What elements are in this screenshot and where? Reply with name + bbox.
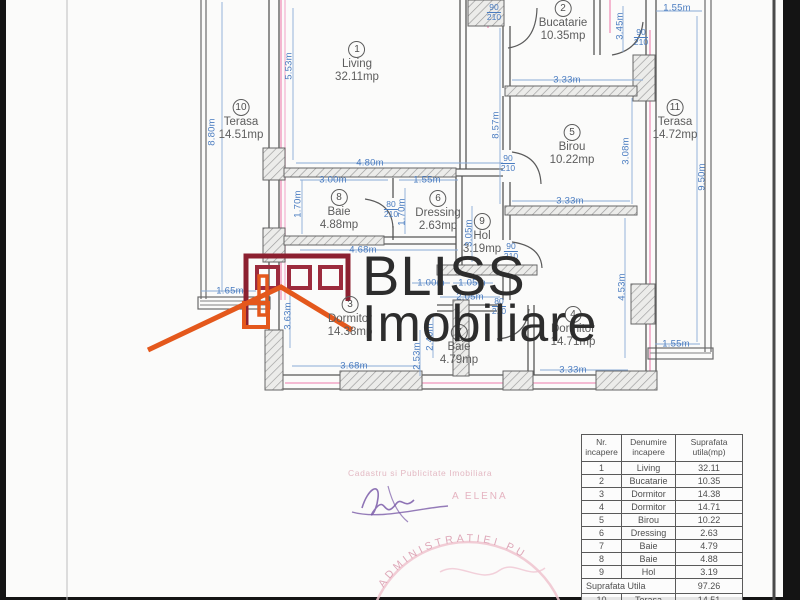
table-total-row: Suprafata Utila 97.26: [582, 579, 743, 594]
door-size-label: 90210: [634, 28, 648, 46]
table-cell: 10: [582, 594, 622, 600]
room-label: 10Terasa14.51mp: [219, 97, 264, 142]
table-cell: Living: [622, 462, 676, 475]
door-size-label: 80210: [384, 200, 398, 218]
room-area: 14.72mp: [653, 129, 698, 142]
table-cell: 14.71: [676, 501, 743, 514]
room-name: Dressing: [415, 207, 460, 220]
dimension-label: 8.80m: [207, 118, 218, 145]
seal-arc-text: ADMINISTRATIEI PU: [376, 532, 529, 589]
scanned-floorplan-page: ADMINISTRATIEI PU 1Living32.11mp2Bucatar…: [0, 0, 800, 600]
area-table-body: 1Living32.112Bucatarie10.353Dormitor14.3…: [582, 462, 743, 579]
table-cell: 10.22: [676, 514, 743, 527]
room-label: 6Dressing2.63mp: [415, 188, 460, 233]
table-cell: 10.35: [676, 475, 743, 488]
dimension-label: 3.33m: [556, 196, 583, 207]
table-row: 5Birou10.22: [582, 514, 743, 527]
room-number-circle: 3: [341, 296, 358, 313]
room-area: 32.11mp: [335, 71, 379, 84]
room-name: Baie: [320, 206, 358, 219]
dimension-label: 5.53m: [284, 52, 295, 79]
stamp-name-text: A ELENA: [452, 491, 508, 502]
table-cell: Birou: [622, 514, 676, 527]
table-cell: 4.88: [676, 553, 743, 566]
watermark-line2: Imobiliare: [362, 301, 597, 349]
room-label: 8Baie4.88mp: [320, 187, 358, 232]
area-table-partial: 10Terasa14.51: [582, 594, 743, 600]
table-header-nr: Nr.incapere: [582, 435, 622, 462]
table-cell: Dormitor: [622, 488, 676, 501]
room-number-circle: 1: [349, 41, 366, 58]
dimension-label: 8.57m: [491, 111, 502, 138]
room-label: 5Birou10.22mp: [550, 122, 595, 167]
table-row: 8Baie4.88: [582, 553, 743, 566]
table-header-suprafata: Suprafatautila(mp): [676, 435, 743, 462]
table-cell: 4: [582, 501, 622, 514]
svg-text:ADMINISTRATIEI PU: ADMINISTRATIEI PU: [376, 532, 529, 589]
dimension-label: 3.05m: [464, 219, 475, 246]
dimension-label: 1.70m: [293, 190, 304, 217]
room-name: Bucatarie: [539, 17, 588, 30]
area-table: Nr.incapere Denumireincapere Suprafataut…: [581, 434, 743, 600]
table-cell: Dressing: [622, 527, 676, 540]
dimension-label: 1.55m: [663, 3, 690, 14]
table-cell: Baie: [622, 553, 676, 566]
table-cell: 4.79: [676, 540, 743, 553]
dimension-label: 4.80m: [356, 158, 383, 169]
room-name: Terasa: [653, 116, 698, 129]
room-area: 10.22mp: [550, 154, 595, 167]
table-cell: 5: [582, 514, 622, 527]
room-number-circle: 8: [330, 189, 347, 206]
dimension-label: 3.33m: [559, 365, 586, 376]
dimension-label: 3.68m: [340, 361, 367, 372]
room-name: Living: [335, 58, 379, 71]
table-cell: 7: [582, 540, 622, 553]
table-row: 9Hol3.19: [582, 566, 743, 579]
bliss-logo-graphic: [148, 256, 352, 350]
room-number-circle: 10: [232, 99, 249, 116]
table-cell: Baie: [622, 540, 676, 553]
dimension-label: 3.00m: [319, 175, 346, 186]
room-area: 4.88mp: [320, 219, 358, 232]
dimension-label: 1.55m: [662, 339, 689, 350]
room-name: Terasa: [219, 116, 264, 129]
table-cell: 14.51: [676, 594, 743, 600]
stamp-office-text: Cadastru si Publicitate Imobiliara: [348, 468, 492, 478]
table-cell: 32.11: [676, 462, 743, 475]
table-cell: Terasa: [622, 594, 676, 600]
room-area: 4.79mp: [440, 354, 478, 367]
table-cell: Hol: [622, 566, 676, 579]
room-label: 2Bucatarie10.35mp: [539, 0, 588, 43]
table-cell: 1: [582, 462, 622, 475]
room-area: 14.51mp: [219, 129, 264, 142]
dimension-label: 4.53m: [617, 273, 628, 300]
dimension-label: 1.55m: [413, 175, 440, 186]
table-cell: Bucatarie: [622, 475, 676, 488]
handwritten-signature: [362, 489, 414, 515]
dimension-label: 3.63m: [283, 302, 294, 329]
dimension-label: 3.08m: [621, 137, 632, 164]
door-size-label: 90210: [501, 154, 515, 172]
table-row: 2Bucatarie10.35: [582, 475, 743, 488]
table-row: 4Dormitor14.71: [582, 501, 743, 514]
room-number-circle: 9: [473, 213, 490, 230]
watermark-line1: BLISS: [362, 250, 526, 302]
room-label: 1Living32.11mp: [335, 39, 379, 84]
table-row: 1Living32.11: [582, 462, 743, 475]
table-cell: 6: [582, 527, 622, 540]
table-cell: 3.19: [676, 566, 743, 579]
table-row: 3Dormitor14.38: [582, 488, 743, 501]
dimension-label: 1.65m: [216, 286, 243, 297]
table-cell: 3: [582, 488, 622, 501]
table-row-partial: 10Terasa14.51: [582, 594, 743, 600]
table-cell: Dormitor: [622, 501, 676, 514]
room-area: 10.35mp: [539, 30, 588, 43]
room-name: Birou: [550, 141, 595, 154]
table-row: 6Dressing2.63: [582, 527, 743, 540]
room-area: 2.63mp: [415, 220, 460, 233]
room-number-circle: 11: [666, 99, 683, 116]
table-row: 7Baie4.79: [582, 540, 743, 553]
door-size-label: 90210: [487, 3, 501, 21]
stamp-and-signature: ADMINISTRATIEI PU: [352, 486, 568, 600]
dimension-label: 3.45m: [615, 12, 626, 39]
table-cell: 14.38: [676, 488, 743, 501]
table-cell: 9: [582, 566, 622, 579]
total-label: Suprafata Utila: [582, 579, 676, 594]
room-number-circle: 2: [555, 0, 572, 17]
table-cell: 2.63: [676, 527, 743, 540]
room-number-circle: 6: [429, 190, 446, 207]
room-number-circle: 5: [563, 124, 580, 141]
table-header-denumire: Denumireincapere: [622, 435, 676, 462]
total-value: 97.26: [676, 579, 743, 594]
dimension-label: 9.50m: [697, 163, 708, 190]
dimension-label: 1.70m: [397, 198, 408, 225]
dimension-label: 3.33m: [553, 75, 580, 86]
table-cell: 2: [582, 475, 622, 488]
room-label: 11Terasa14.72mp: [653, 97, 698, 142]
table-cell: 8: [582, 553, 622, 566]
